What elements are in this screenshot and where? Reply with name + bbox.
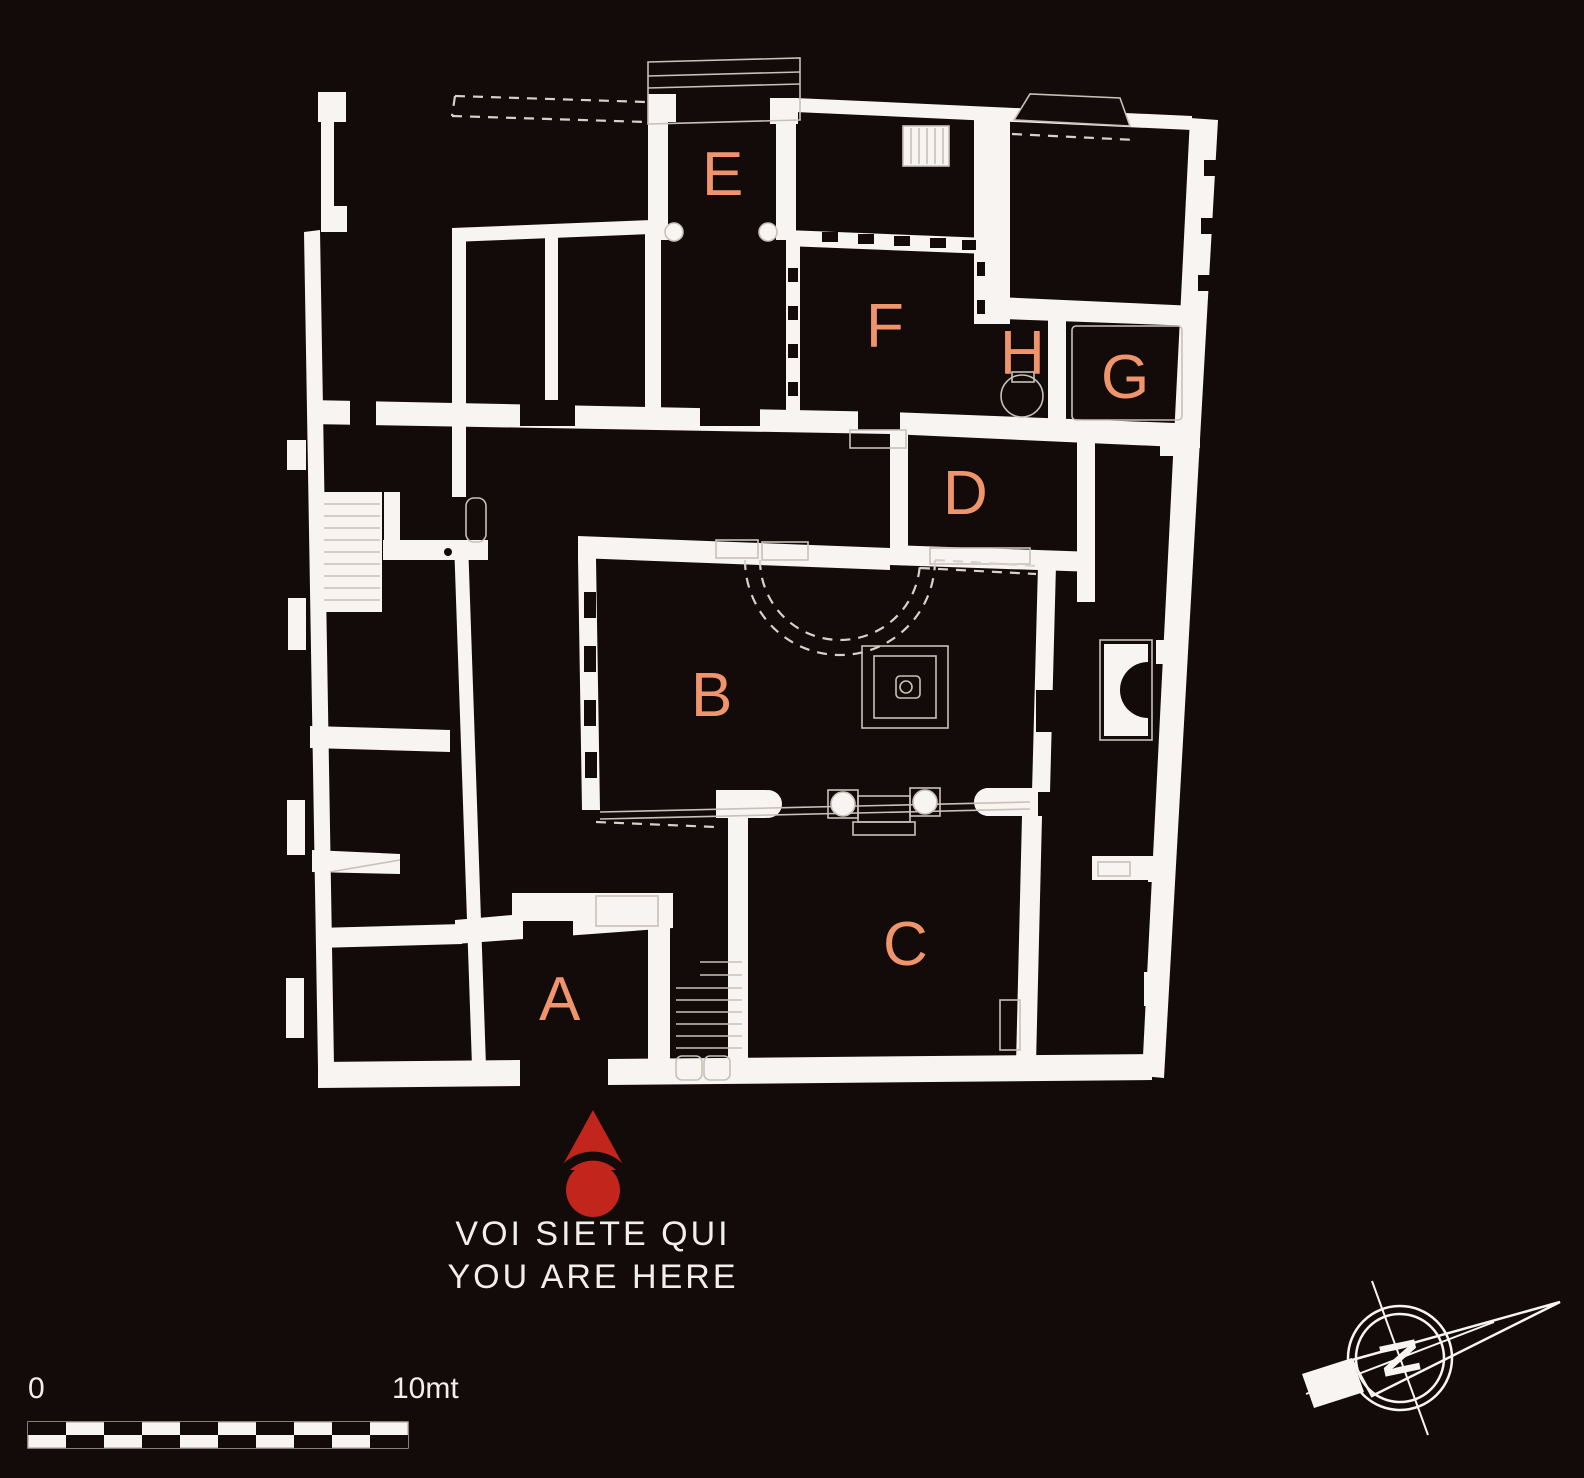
scale-start-label: 0 bbox=[28, 1372, 45, 1405]
floor-plan-canvas: A B C D E F G H VOI SIETE QUI YOU ARE HE… bbox=[0, 0, 1584, 1478]
you-are-here-marker: VOI SIETE QUI YOU ARE HERE bbox=[447, 1110, 738, 1296]
floor-plan: A B C D E F G H bbox=[286, 58, 1220, 1088]
you-are-here-line2: YOU ARE HERE bbox=[447, 1258, 738, 1296]
column-icon bbox=[831, 792, 855, 816]
room-label-b: B bbox=[691, 661, 732, 730]
scale-bar: 0 10mt bbox=[28, 1372, 459, 1448]
scale-checker bbox=[28, 1422, 408, 1448]
room-label-g: G bbox=[1101, 343, 1149, 412]
column-icon bbox=[759, 223, 777, 241]
marker-pin-icon bbox=[566, 1163, 620, 1217]
colonnade bbox=[600, 788, 1030, 835]
room-label-e: E bbox=[702, 140, 743, 209]
walls bbox=[286, 92, 1218, 1088]
scale-end-label: 10mt bbox=[392, 1372, 459, 1405]
you-are-here-line1: VOI SIETE QUI bbox=[455, 1215, 730, 1253]
post-dot bbox=[444, 548, 452, 556]
compass-rose: N bbox=[1302, 1281, 1560, 1435]
room-label-a: A bbox=[539, 965, 581, 1034]
compass-north-letter: N bbox=[1367, 1334, 1432, 1383]
room-label-c: C bbox=[883, 910, 928, 979]
room-label-h: H bbox=[1000, 319, 1045, 388]
column-icon bbox=[913, 790, 937, 814]
column-icon bbox=[665, 223, 683, 241]
room-label-d: D bbox=[943, 459, 988, 528]
room-label-f: F bbox=[866, 292, 904, 361]
you-are-here-map: A B C D E F G H VOI SIETE QUI YOU ARE HE… bbox=[0, 0, 1584, 1478]
impluvium bbox=[862, 646, 948, 728]
